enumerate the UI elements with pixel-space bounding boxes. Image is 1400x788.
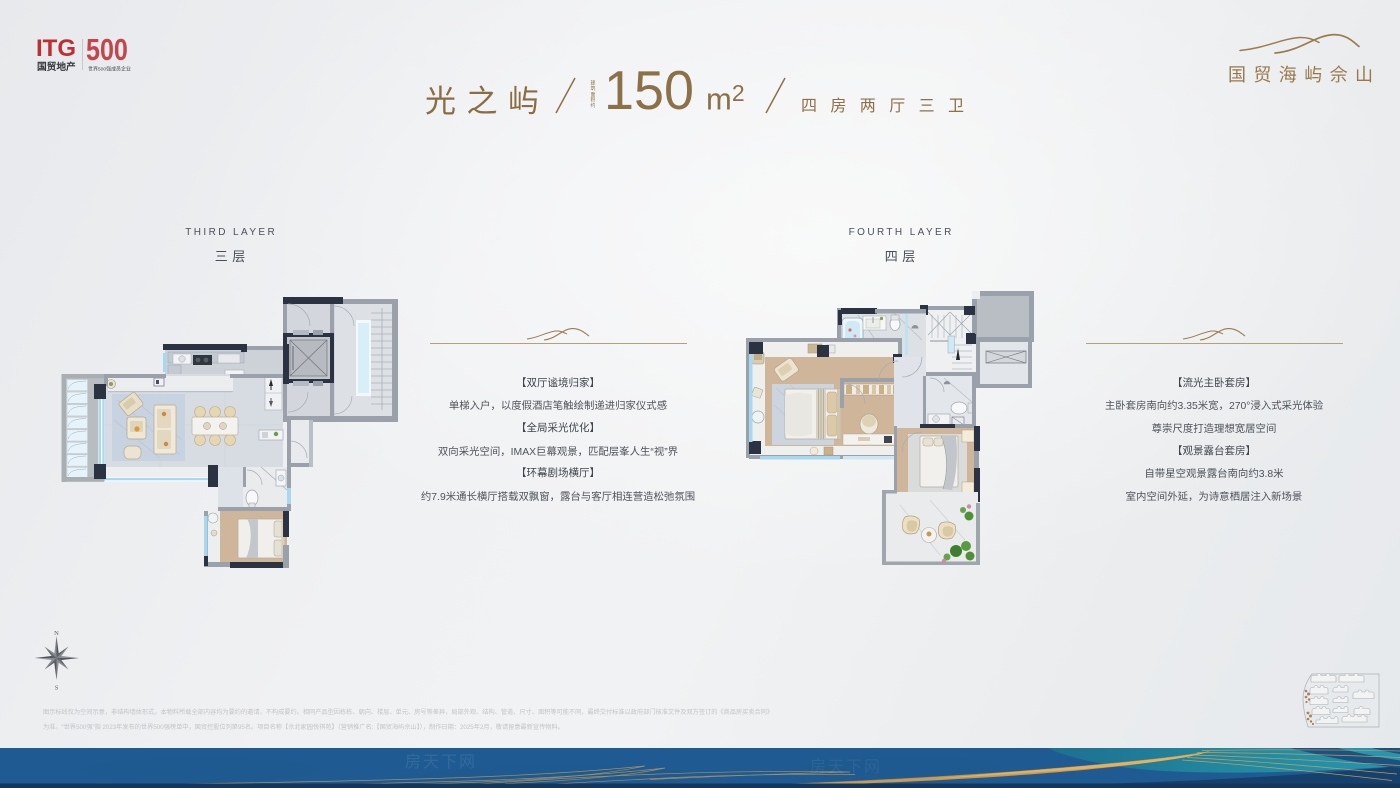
svg-text:积: 积 [591,96,596,103]
svg-text:筑: 筑 [591,85,596,92]
svg-text:S: S [55,685,59,692]
svg-text:N: N [54,630,59,637]
svg-text:建: 建 [591,80,596,87]
svg-text:面: 面 [591,92,596,98]
